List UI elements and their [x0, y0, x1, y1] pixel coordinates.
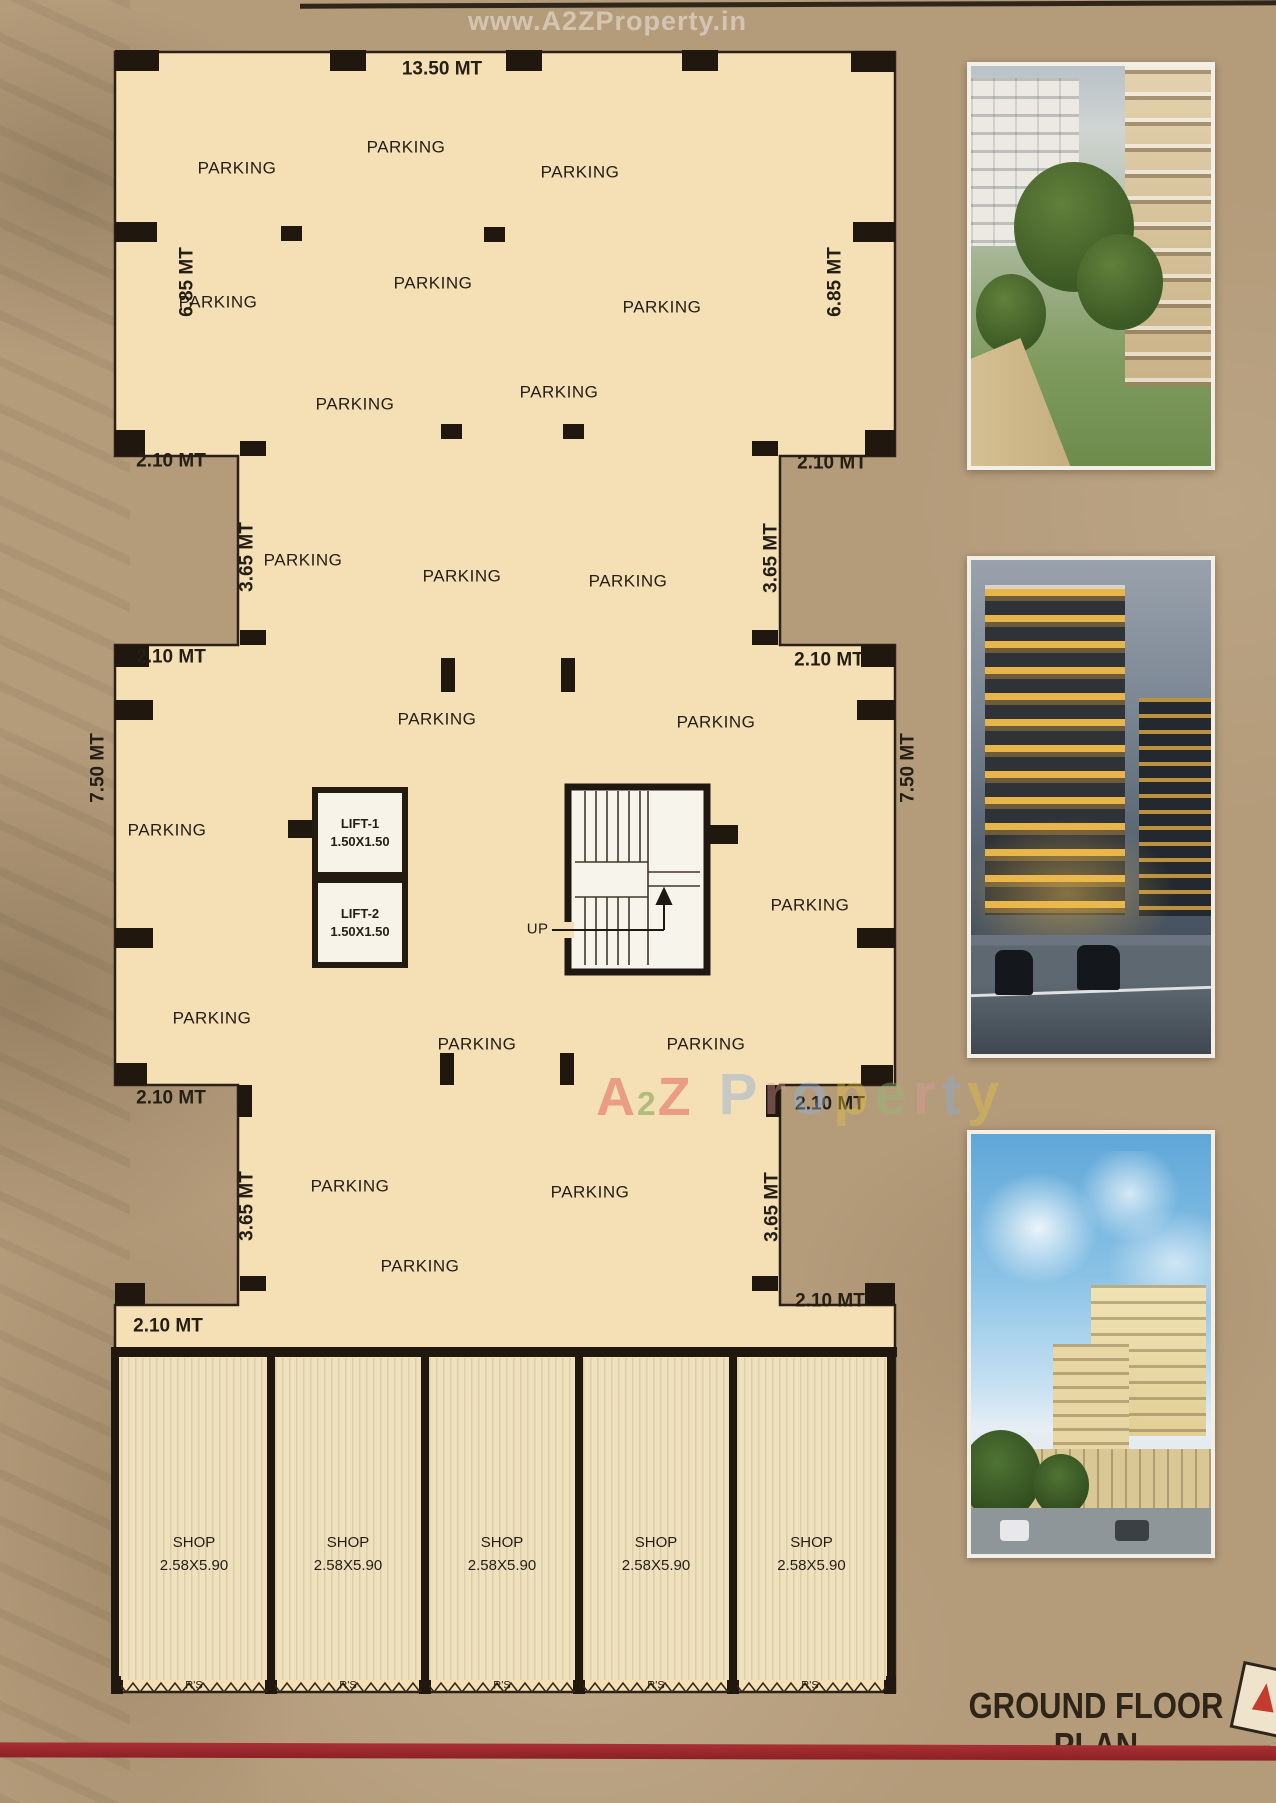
shop-unit-5: SHOP 2.58X5.90	[737, 1358, 886, 1680]
parking-label: PARKING	[520, 384, 599, 401]
building-render-photo-3	[967, 1130, 1215, 1558]
shop-size: 2.58X5.90	[777, 1554, 845, 1577]
parking-label: PARKING	[173, 1010, 252, 1027]
photo-1-tower	[1125, 66, 1211, 386]
dim-step: 2.10 MT	[136, 1089, 206, 1108]
dim-step: 2.10 MT	[794, 651, 864, 670]
shop-label: SHOP	[173, 1531, 216, 1554]
building-render-photo-1	[967, 62, 1215, 470]
shop-label: SHOP	[790, 1531, 833, 1554]
dim-step: 2.10 MT	[133, 1317, 203, 1336]
lift-1-box: LIFT-1 1.50X1.50	[312, 787, 408, 878]
shop-unit-2: SHOP 2.58X5.90	[275, 1358, 421, 1680]
photo-2-car	[995, 950, 1033, 994]
lift-2-name: LIFT-2	[341, 905, 379, 923]
parking-label: PARKING	[316, 396, 395, 413]
photo-1-tree	[976, 274, 1046, 354]
dim-top-width: 13.50 MT	[402, 60, 482, 79]
dim-step: 2.10 MT	[136, 648, 206, 667]
parking-label: PARKING	[541, 164, 620, 181]
parking-label: PARKING	[128, 822, 207, 839]
shop-label: SHOP	[481, 1531, 524, 1554]
shutter-label: R'S	[801, 1681, 818, 1692]
parking-label: PARKING	[198, 160, 277, 177]
dim-neck: 3.65 MT	[763, 1172, 782, 1242]
shop-unit-1: SHOP 2.58X5.90	[121, 1358, 267, 1680]
parking-label: PARKING	[381, 1258, 460, 1275]
parking-label: PARKING	[264, 552, 343, 569]
watermark-a2z: A2Z	[596, 1070, 693, 1124]
parking-label: PARKING	[771, 897, 850, 914]
middle-watermark: A2Z Property	[596, 1066, 1005, 1124]
dim-neck: 3.65 MT	[238, 1171, 257, 1241]
parking-label: PARKING	[398, 711, 477, 728]
parking-label: PARKING	[311, 1178, 390, 1195]
parking-label: PARKING	[667, 1036, 746, 1053]
photo-2-car	[1077, 945, 1120, 989]
shutter-label: R'S	[647, 1681, 664, 1692]
dim-step: 2.10 MT	[797, 454, 867, 473]
photo-1-tree	[1077, 234, 1163, 330]
dim-neck: 3.65 MT	[762, 523, 781, 593]
lift-1-size: 1.50X1.50	[330, 833, 389, 851]
parking-label: PARKING	[367, 139, 446, 156]
shop-size: 2.58X5.90	[160, 1554, 228, 1577]
parking-label: PARKING	[677, 714, 756, 731]
parking-label: PARKING	[551, 1184, 630, 1201]
photo-3-apartment-block	[1053, 1344, 1130, 1453]
lift-2-box: LIFT-2 1.50X1.50	[312, 877, 408, 968]
shutter-label: R'S	[493, 1681, 510, 1692]
staircase	[552, 787, 707, 972]
shop-label: SHOP	[635, 1531, 678, 1554]
photo-2-light-glow	[971, 817, 1211, 945]
photo-3-car	[1000, 1520, 1029, 1541]
dim-wing-height: 6.85 MT	[826, 247, 845, 317]
lift-2-size: 1.50X1.50	[330, 923, 389, 941]
shop-unit-3: SHOP 2.58X5.90	[429, 1358, 575, 1680]
top-watermark: www.A2ZProperty.in	[468, 8, 747, 35]
shutter-label: R'S	[185, 1681, 202, 1692]
dim-step: 2.10 MT	[136, 452, 206, 471]
up-label: UP	[527, 922, 549, 937]
shutter-label: R'S	[339, 1681, 356, 1692]
shop-size: 2.58X5.90	[468, 1554, 536, 1577]
dim-neck: 3.65 MT	[238, 522, 257, 592]
parking-label: PARKING	[438, 1036, 517, 1053]
shop-label: SHOP	[327, 1531, 370, 1554]
photo-3-car	[1115, 1520, 1149, 1541]
parking-label: PARKING	[423, 568, 502, 585]
dim-mid-height: 7.50 MT	[899, 733, 918, 803]
dim-mid-height: 7.50 MT	[89, 733, 108, 803]
building-render-photo-2	[967, 556, 1215, 1058]
watermark-property: Property	[719, 1066, 1006, 1124]
compass-needle	[1252, 1682, 1276, 1713]
parking-label: PARKING	[394, 275, 473, 292]
parking-label: PARKING	[589, 573, 668, 590]
dim-step: 2.10 MT	[795, 1292, 865, 1311]
lift-1-name: LIFT-1	[341, 815, 379, 833]
shop-size: 2.58X5.90	[622, 1554, 690, 1577]
brochure-page: { "page": { "background": "#b49c7b", "ac…	[0, 0, 1276, 1803]
parking-label: PARKING	[623, 299, 702, 316]
shop-unit-4: SHOP 2.58X5.90	[583, 1358, 729, 1680]
shop-size: 2.58X5.90	[314, 1554, 382, 1577]
dim-wing-height: 6.85 MT	[178, 247, 197, 317]
